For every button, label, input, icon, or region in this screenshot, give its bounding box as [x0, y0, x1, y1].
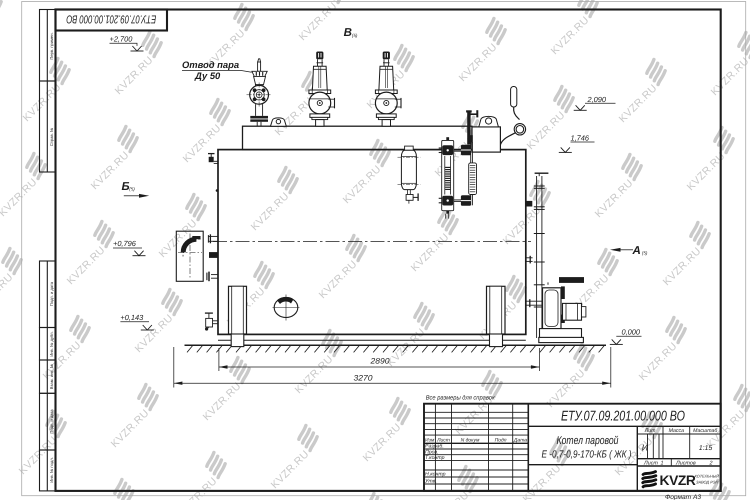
svg-text:1: 1 — [661, 460, 664, 466]
svg-text:Т.контр: Т.контр — [425, 455, 445, 461]
svg-text:(5): (5) — [642, 251, 648, 256]
svg-text:Лист: Лист — [436, 437, 450, 443]
svg-text:Котел паровой: Котел паровой — [557, 435, 620, 447]
svg-text:Отвод пара: Отвод пара — [182, 59, 239, 70]
svg-text:Е -0,7-0,9-170-КБ ( ЖК ): Е -0,7-0,9-170-КБ ( ЖК ) — [542, 450, 632, 461]
svg-text:Подп. и дата: Подп. и дата — [49, 281, 54, 306]
svg-text:Ду 50: Ду 50 — [194, 70, 221, 81]
svg-text:KVZR: KVZR — [660, 473, 696, 488]
svg-text:Перв. примен.: Перв. примен. — [49, 32, 54, 59]
svg-text:Н.контр: Н.контр — [425, 472, 446, 478]
svg-text:1,746: 1,746 — [571, 133, 590, 142]
svg-text:2890: 2890 — [369, 357, 390, 366]
svg-text:0,000: 0,000 — [622, 327, 641, 336]
svg-text:(5): (5) — [352, 33, 358, 38]
svg-text:Масштаб: Масштаб — [693, 428, 718, 434]
svg-text:Изм: Изм — [425, 437, 435, 443]
svg-text:ЗАВОД РЭП: ЗАВОД РЭП — [696, 480, 719, 485]
svg-text:Листов: Листов — [675, 460, 696, 466]
svg-text:Подп. и дата: Подп. и дата — [49, 409, 54, 434]
svg-text:Инв. № дубл.: Инв. № дубл. — [49, 331, 54, 356]
svg-text:Формат А3: Формат А3 — [665, 494, 701, 500]
svg-text:И: И — [642, 442, 649, 452]
svg-text:2,090: 2,090 — [587, 95, 607, 104]
svg-text:+0,143: +0,143 — [120, 313, 144, 322]
svg-text:Инв. № подл.: Инв. № подл. — [49, 457, 54, 483]
svg-text:Взам. инв. №: Взам. инв. № — [49, 363, 54, 389]
svg-text:Подп: Подп — [495, 437, 507, 443]
svg-text:Дата: Дата — [513, 437, 527, 443]
svg-text:N докум: N докум — [461, 437, 480, 443]
svg-text:3270: 3270 — [354, 373, 374, 382]
svg-text:(5): (5) — [129, 187, 135, 192]
svg-text:Утв.: Утв. — [425, 479, 437, 485]
svg-text:+0,796: +0,796 — [113, 239, 137, 248]
svg-text:Масса: Масса — [669, 428, 684, 434]
svg-text:2: 2 — [709, 460, 713, 466]
svg-text:ЕТУ.07.09.201.00.000 ВО: ЕТУ.07.09.201.00.000 ВО — [561, 409, 685, 425]
svg-text:1:15: 1:15 — [699, 445, 713, 452]
svg-text:Справ. №: Справ. № — [49, 127, 54, 146]
svg-text:Все размеры для справок: Все размеры для справок — [426, 395, 496, 402]
svg-text:ЕТУ.07.09.201.00.000 ВО: ЕТУ.07.09.201.00.000 ВО — [66, 12, 156, 24]
svg-text:Лит: Лит — [644, 428, 656, 434]
svg-text:А: А — [632, 245, 641, 257]
svg-text:+2,700: +2,700 — [110, 35, 134, 44]
svg-text:В: В — [344, 27, 352, 39]
svg-text:Лист: Лист — [643, 461, 658, 467]
svg-text:КОТЕЛЬНЫЙ: КОТЕЛЬНЫЙ — [695, 474, 720, 479]
